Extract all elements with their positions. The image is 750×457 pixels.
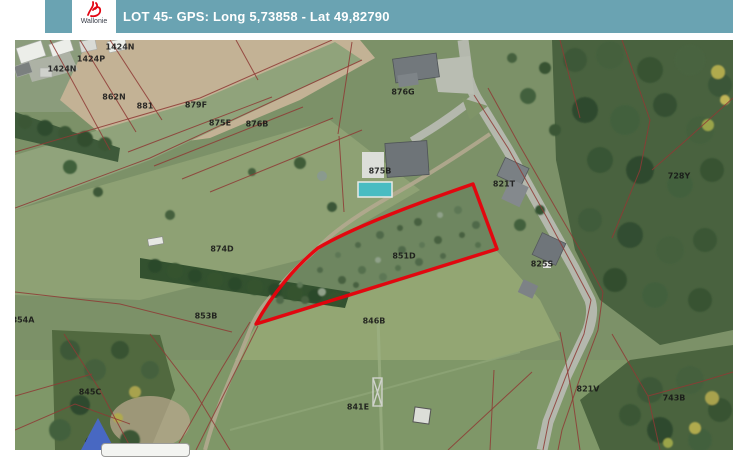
parcel-label-845C: 845C xyxy=(79,388,102,397)
parcel-label-1424N: 1424N xyxy=(106,43,135,52)
swimming-pool xyxy=(358,182,392,197)
parcel-label-1424P: 1424P xyxy=(77,55,105,64)
parcel-label-821T: 821T xyxy=(493,180,516,189)
parcel-label-728Y: 728Y xyxy=(668,172,691,181)
parcel-label-862N: 862N xyxy=(102,93,125,102)
shed xyxy=(413,407,431,424)
parcel-label-851D: 851D xyxy=(392,252,416,261)
parcel-label-1424N: 1424N xyxy=(48,65,77,74)
parcel-label-875B: 875B xyxy=(369,167,392,176)
parcel-label-825S: 825S xyxy=(531,260,554,269)
parcel-label-881: 881 xyxy=(137,102,154,111)
parcel-label-876G: 876G xyxy=(391,88,414,97)
parcel-label-841E: 841E xyxy=(347,403,369,412)
parcel-label-875E: 875E xyxy=(209,119,231,128)
parcel-label-821V: 821V xyxy=(577,385,601,394)
parcel-label-879F: 879F xyxy=(185,101,207,110)
parcel-label-874D: 874D xyxy=(210,245,234,254)
scale-pill xyxy=(101,443,190,457)
page: { "header": { "title": "LOT 45- GPS: Lon… xyxy=(0,0,750,450)
parcel-label-743B: 743B xyxy=(663,394,686,403)
parcel-label-846B: 846B xyxy=(363,317,386,326)
parcel-label-853B: 853B xyxy=(195,312,218,321)
aerial-map-image[interactable]: 1424N1424P1424N862N881879F875E876B876G87… xyxy=(0,0,750,450)
parcel-label-876B: 876B xyxy=(246,120,269,129)
parcel-label-854A: 854A xyxy=(12,316,36,325)
